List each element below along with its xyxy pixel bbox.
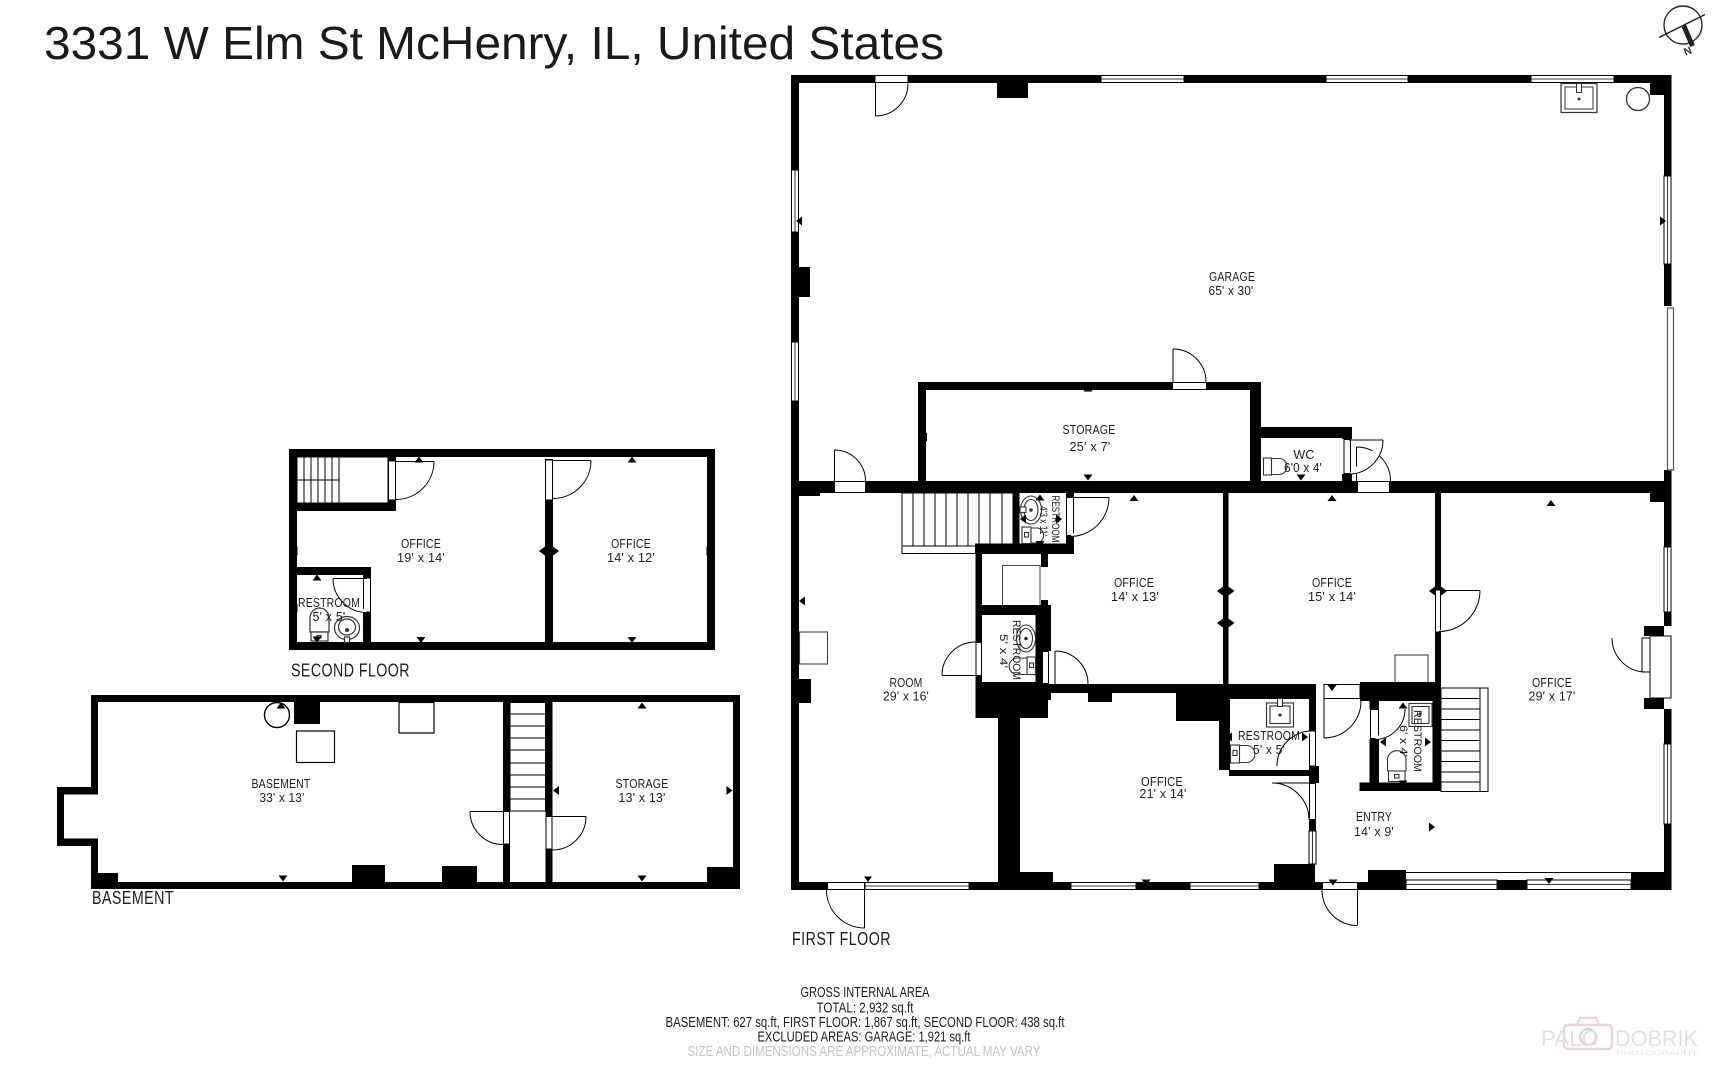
svg-text:14' x 12': 14' x 12' bbox=[607, 551, 655, 565]
svg-text:PHOTOGRAPHY: PHOTOGRAPHY bbox=[1616, 1050, 1699, 1057]
svg-text:SIZE AND DIMENSIONS ARE APPROX: SIZE AND DIMENSIONS ARE APPROXIMATE, ACT… bbox=[688, 1044, 1041, 1060]
svg-text:5' x 5': 5' x 5' bbox=[313, 610, 346, 624]
svg-text:5' x 5': 5' x 5' bbox=[1253, 743, 1285, 757]
svg-text:ENTRY: ENTRY bbox=[1356, 810, 1392, 824]
svg-text:15' x 14': 15' x 14' bbox=[1308, 590, 1356, 604]
svg-text:GARAGE: GARAGE bbox=[1209, 270, 1255, 284]
svg-text:14' x 9': 14' x 9' bbox=[1354, 825, 1394, 839]
svg-text:OFFICE: OFFICE bbox=[1532, 676, 1572, 690]
svg-text:3331 W Elm St McHenry, IL, Uni: 3331 W Elm St McHenry, IL, United States bbox=[44, 17, 944, 69]
svg-text:14' x 13': 14' x 13' bbox=[1111, 590, 1159, 604]
svg-text:WC: WC bbox=[1293, 448, 1314, 462]
svg-text:BASEMENT: BASEMENT bbox=[92, 887, 174, 908]
svg-text:25' x 7': 25' x 7' bbox=[1070, 440, 1111, 454]
svg-text:65' x 30': 65' x 30' bbox=[1209, 284, 1254, 298]
svg-text:RESTROOM: RESTROOM bbox=[1238, 729, 1300, 743]
svg-text:29' x 16': 29' x 16' bbox=[883, 690, 929, 704]
svg-text:STORAGE: STORAGE bbox=[616, 777, 669, 791]
svg-text:OFFICE: OFFICE bbox=[1114, 576, 1154, 590]
svg-text:OFFICE: OFFICE bbox=[611, 537, 651, 551]
svg-text:6'0 x 4': 6'0 x 4' bbox=[1284, 461, 1322, 475]
svg-text:5' x 4': 5' x 4' bbox=[997, 634, 1009, 668]
svg-text:RESTROOM: RESTROOM bbox=[1411, 710, 1423, 772]
svg-text:PALO: PALO bbox=[1541, 1026, 1599, 1051]
svg-text:RESTROOM: RESTROOM bbox=[298, 596, 360, 610]
svg-text:4'3 x 11': 4'3 x 11' bbox=[1037, 506, 1049, 536]
svg-text:19' x 14': 19' x 14' bbox=[397, 551, 445, 565]
svg-text:13' x 13': 13' x 13' bbox=[619, 791, 666, 805]
svg-text:N: N bbox=[1682, 45, 1694, 59]
svg-text:OFFICE: OFFICE bbox=[401, 537, 441, 551]
svg-text:DOBRIK: DOBRIK bbox=[1615, 1026, 1698, 1051]
svg-text:29' x 17': 29' x 17' bbox=[1529, 690, 1576, 704]
svg-text:33' x 13': 33' x 13' bbox=[260, 791, 305, 805]
svg-text:6' x 4': 6' x 4' bbox=[1397, 725, 1409, 757]
svg-text:SECOND FLOOR: SECOND FLOOR bbox=[291, 660, 410, 681]
svg-text:FIRST FLOOR: FIRST FLOOR bbox=[792, 928, 891, 949]
svg-text:OFFICE: OFFICE bbox=[1312, 576, 1352, 590]
svg-text:ROOM: ROOM bbox=[890, 676, 923, 690]
svg-text:GROSS INTERNAL AREA: GROSS INTERNAL AREA bbox=[801, 985, 930, 1001]
svg-text:STORAGE: STORAGE bbox=[1063, 423, 1116, 437]
svg-text:BASEMENT: BASEMENT bbox=[252, 777, 311, 791]
svg-text:RESTROOM: RESTROOM bbox=[1010, 620, 1022, 680]
svg-text:21' x 14': 21' x 14' bbox=[1140, 787, 1187, 801]
